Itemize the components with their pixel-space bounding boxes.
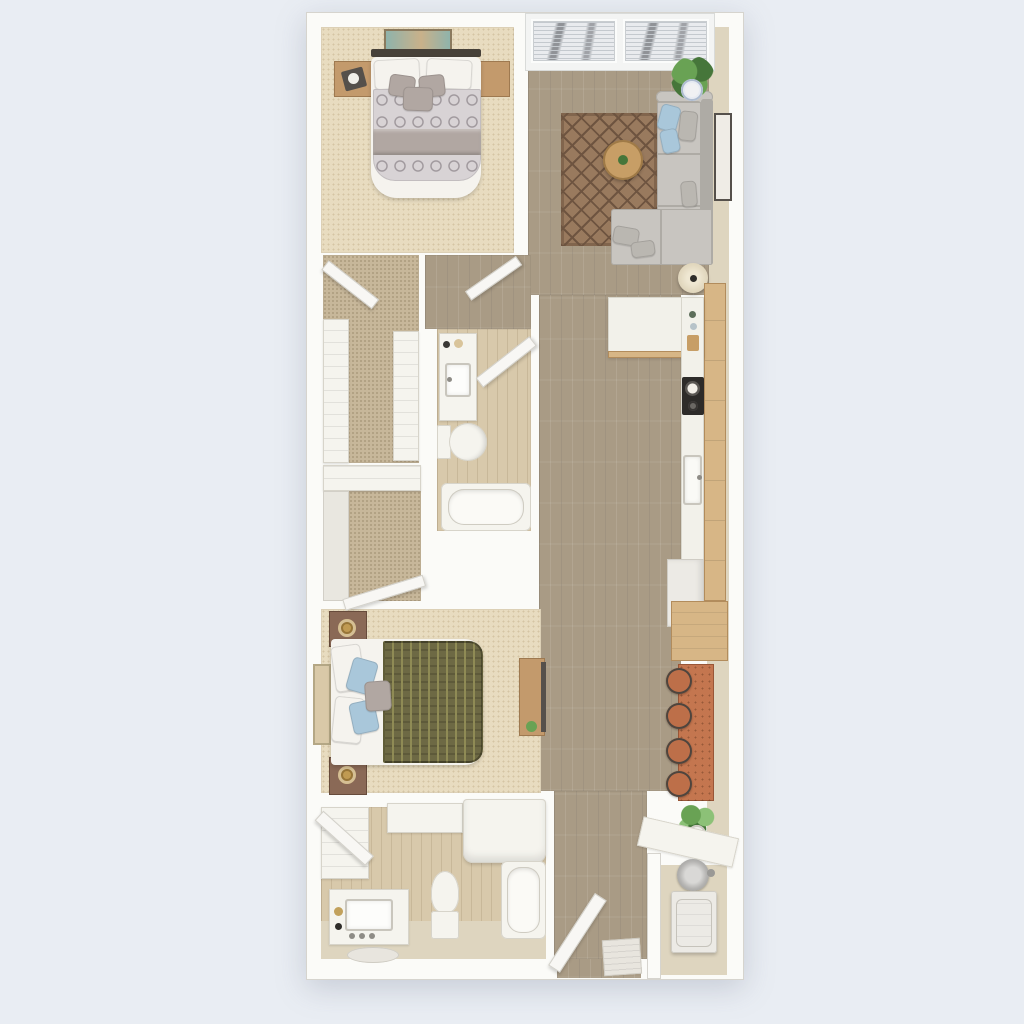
bar-stool-1 bbox=[666, 668, 692, 694]
water-heater bbox=[677, 859, 709, 891]
apartment-plan bbox=[306, 12, 744, 980]
sofa-pillow-gray-2 bbox=[680, 180, 698, 207]
kitchen-sink bbox=[683, 455, 702, 505]
bathroom2-vanity-knob bbox=[334, 907, 343, 916]
entry-door-mat bbox=[602, 938, 642, 977]
living-wall-art bbox=[714, 113, 732, 201]
bed2-duvet bbox=[383, 641, 483, 763]
bathroom2-shower-cabinet bbox=[463, 799, 546, 863]
kitchen-faucet bbox=[697, 475, 702, 480]
bathroom1-faucet bbox=[447, 377, 452, 382]
water-heater-pipe bbox=[707, 869, 715, 877]
bathroom1-bathtub-basin bbox=[448, 489, 524, 525]
bathroom2-storage-counter bbox=[387, 803, 463, 833]
bathroom2-faucet-knobs bbox=[359, 933, 365, 939]
cooktop-burner bbox=[688, 401, 698, 411]
coffee-table-plant bbox=[618, 155, 628, 165]
closet1-shelving-right bbox=[393, 331, 419, 461]
bathroom2-bath-mat bbox=[347, 947, 399, 963]
bathroom2-bathtub-basin bbox=[507, 867, 540, 933]
counter-bottle-1 bbox=[689, 311, 696, 318]
laundry-wall bbox=[647, 853, 661, 979]
counter-bottle-2 bbox=[690, 323, 697, 330]
bathroom1-toiletries bbox=[443, 341, 450, 348]
bathroom1-soap-dish bbox=[454, 339, 463, 348]
bedroom2-wall-art bbox=[313, 664, 331, 745]
wood-buffet-hutch bbox=[671, 601, 728, 661]
console-plant bbox=[526, 721, 537, 732]
chaise-pillow-2 bbox=[630, 239, 656, 258]
bed2-pillow-taupe bbox=[364, 680, 392, 712]
bar-stool-4 bbox=[666, 771, 692, 797]
floor-lamp-finial bbox=[690, 275, 697, 282]
corner-plant-pot bbox=[681, 79, 703, 101]
closet1-shelving-left bbox=[323, 319, 349, 463]
bed1-headboard bbox=[371, 49, 481, 57]
floorplan-render bbox=[0, 0, 1024, 1024]
bar-stool-3 bbox=[666, 738, 692, 764]
hallway-floor bbox=[539, 295, 681, 791]
bedroom1-nightstand-right bbox=[478, 61, 510, 97]
closet2-wardrobe bbox=[323, 491, 349, 601]
bedroom2-lamp-bottom bbox=[338, 766, 356, 784]
bed1-accent-pillow-3 bbox=[403, 86, 434, 111]
kitchen-wall-cabinets bbox=[704, 283, 726, 601]
bathroom2-sink bbox=[345, 899, 393, 931]
washer-front-panel bbox=[676, 899, 712, 947]
bed1-throw-blanket bbox=[373, 129, 481, 155]
sofa-pillow-gray-1 bbox=[677, 110, 698, 142]
window-blinds-left bbox=[531, 19, 617, 63]
bedroom2-lamp-top bbox=[338, 619, 356, 637]
tray-dish bbox=[348, 73, 359, 84]
bedroom2-tv bbox=[541, 662, 546, 732]
bathroom2-toilet-tank bbox=[431, 911, 459, 939]
bathroom2-vanity-dot bbox=[335, 923, 342, 930]
counter-cutting-board bbox=[687, 335, 699, 351]
bar-stool-2 bbox=[666, 703, 692, 729]
bathroom2-toilet-bowl bbox=[431, 871, 459, 913]
bathroom1-toilet-bowl bbox=[449, 423, 487, 461]
cooktop-pan bbox=[685, 381, 700, 396]
closet2-shelf-band bbox=[323, 465, 421, 491]
